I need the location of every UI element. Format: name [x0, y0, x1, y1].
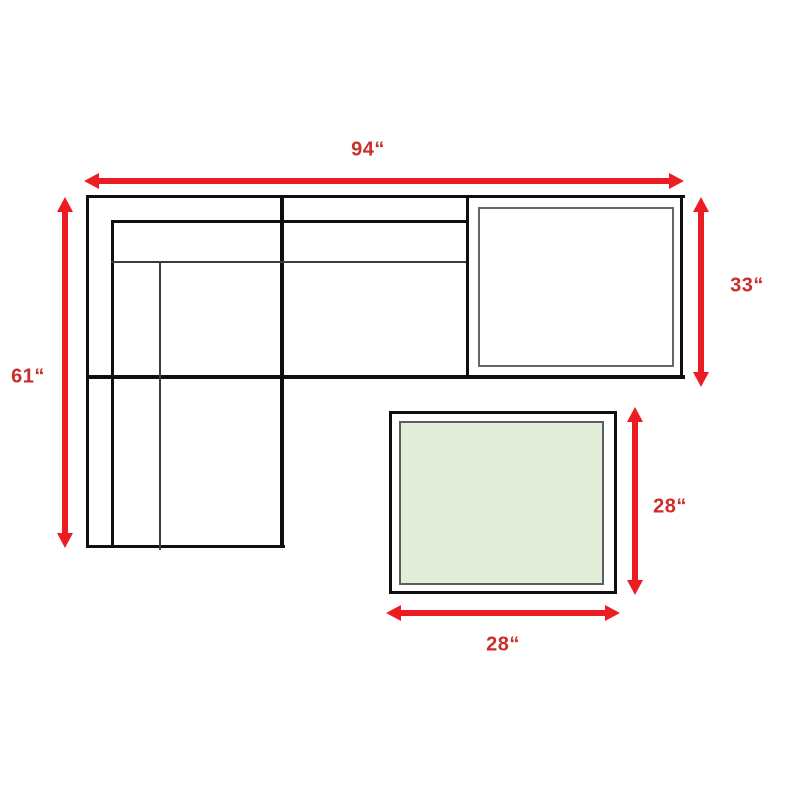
corner-section-cushion	[478, 207, 674, 367]
chaise-seat-line	[159, 261, 161, 550]
backrest-line	[111, 220, 469, 223]
arrow-head-right	[669, 173, 684, 189]
ottoman-width-arrow	[386, 605, 620, 621]
arrow-head-down	[57, 533, 73, 548]
ottoman-depth-arrow	[627, 407, 643, 595]
arrow-shaft	[632, 420, 638, 582]
section-divider-line	[280, 195, 284, 548]
ottoman-cushion	[399, 421, 604, 585]
arrow-head-right	[605, 605, 620, 621]
arrow-head-down	[693, 372, 709, 387]
arrow-shaft	[698, 210, 704, 374]
arrow-head-down	[627, 580, 643, 595]
arm-inner-line	[111, 220, 114, 548]
corner-depth-label: 33“	[730, 275, 764, 298]
arrow-shaft	[62, 210, 68, 535]
back-cushion-line	[111, 261, 469, 263]
arrow-shaft	[97, 178, 671, 184]
corner-depth-arrow	[693, 197, 709, 387]
ottoman-depth-label: 28“	[653, 496, 687, 519]
sofa-width-label: 94“	[351, 139, 385, 162]
sofa-left-edge	[86, 195, 89, 548]
sofa-width-arrow	[84, 173, 684, 189]
sofa-depth-label: 61“	[11, 366, 45, 389]
sofa-depth-arrow	[57, 197, 73, 548]
furniture-dimension-diagram: 94“ 61“ 33“ 28“ 28“	[0, 0, 800, 800]
chaise-bottom-edge	[86, 545, 285, 548]
arrow-shaft	[399, 610, 607, 616]
ottoman-width-label: 28“	[486, 634, 520, 657]
